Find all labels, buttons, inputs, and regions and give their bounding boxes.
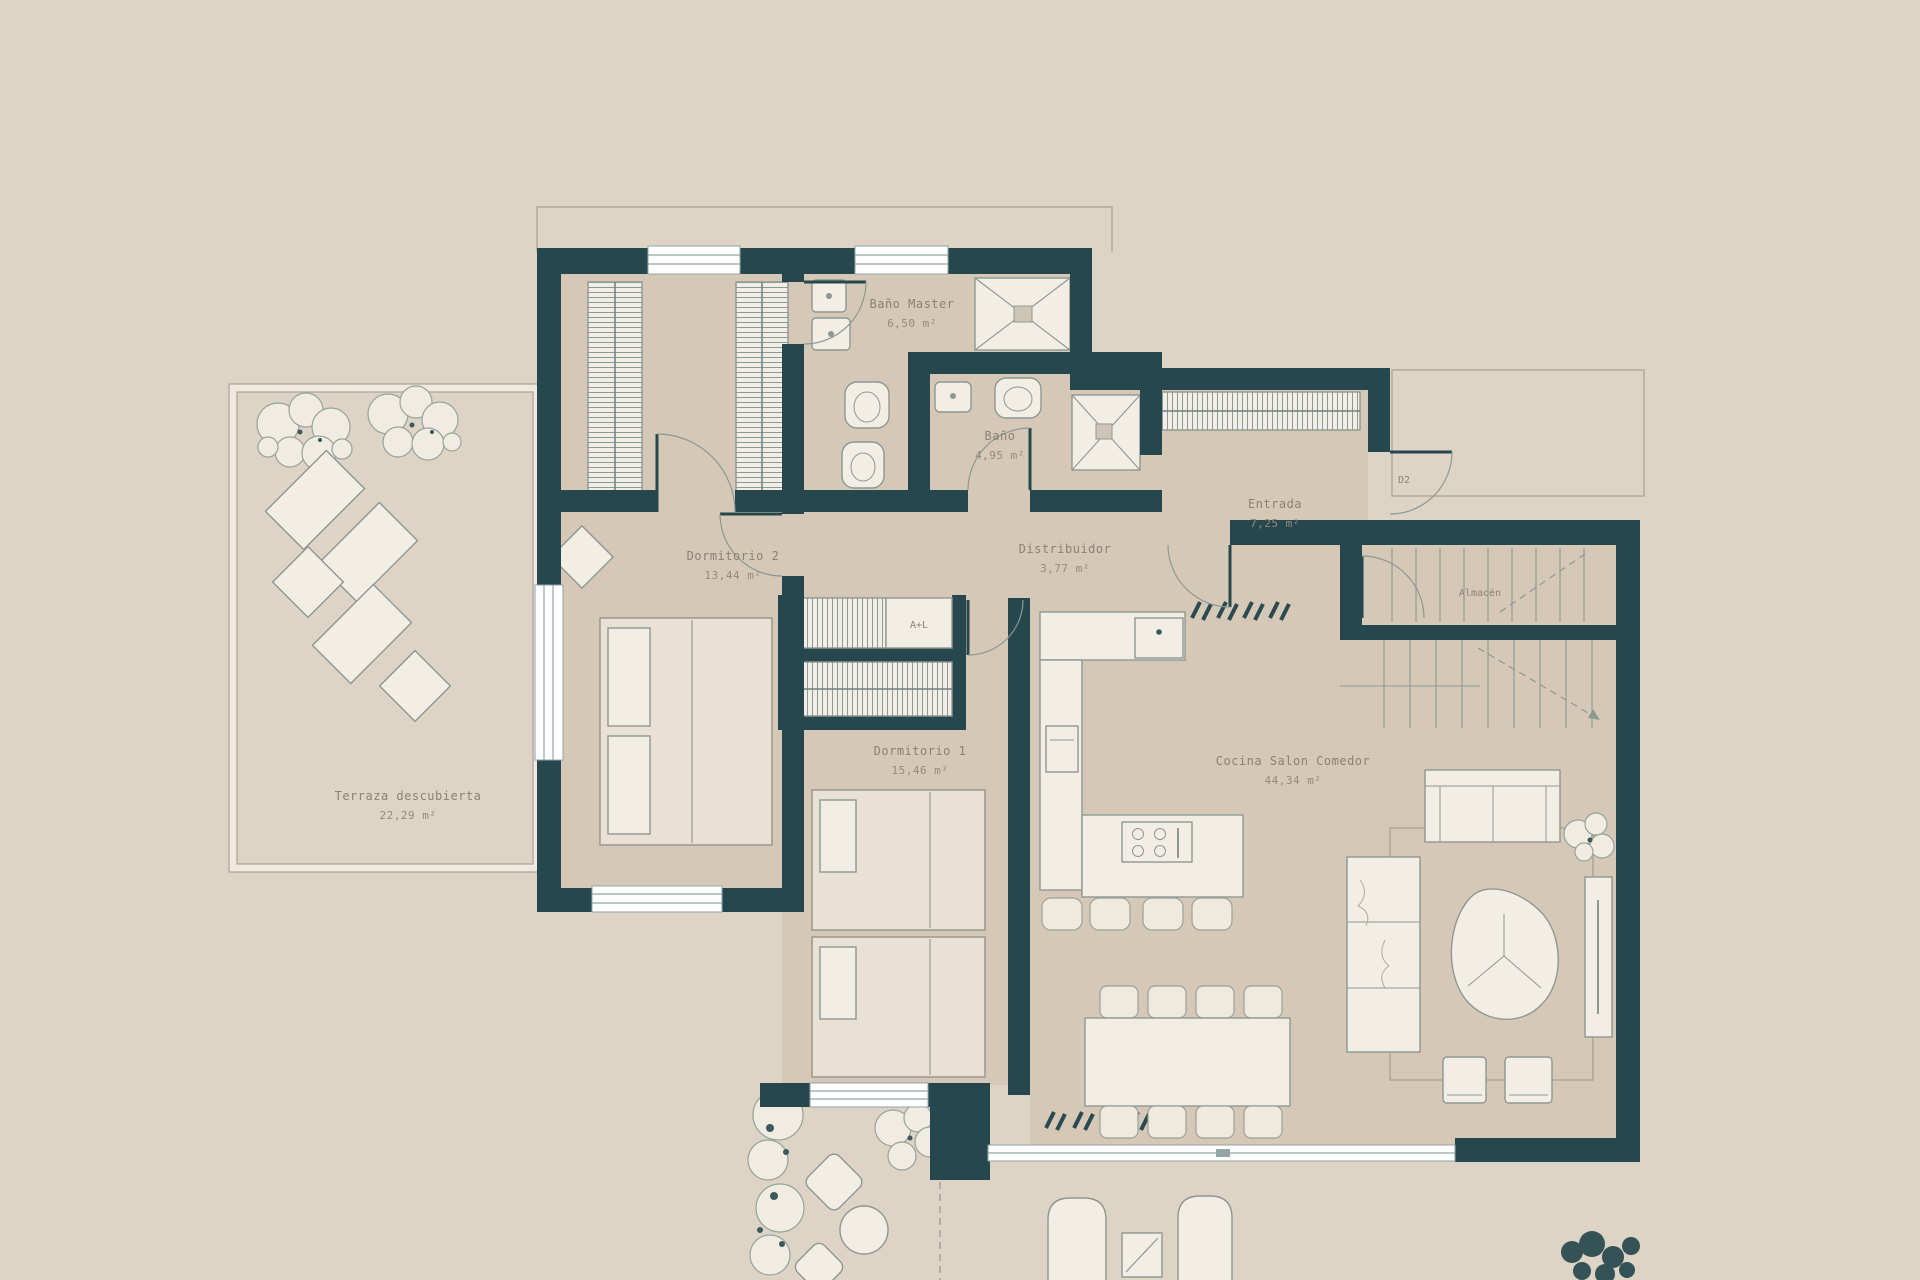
entry-door-tag: D2 [1398, 475, 1410, 486]
window [592, 886, 722, 912]
shower-icon [975, 278, 1070, 350]
window [855, 246, 948, 274]
room-label-entrada: Entrada [1248, 497, 1302, 511]
sun-lounger [1048, 1196, 1232, 1280]
window [535, 585, 563, 760]
sink-icon [1046, 726, 1078, 772]
room-label-dormitorio1: Dormitorio 1 [874, 744, 967, 758]
closet-tag: A+L [910, 620, 928, 631]
room-area-dormitorio2: 13,44 m² [705, 569, 762, 582]
bush-icon [748, 1090, 804, 1275]
room-label-bano: Baño [985, 429, 1016, 443]
room-area-bano: 4,95 m² [975, 449, 1025, 462]
room-area-cocina: 44,34 m² [1265, 774, 1322, 787]
tv-console [1585, 877, 1612, 1037]
window [810, 1083, 928, 1107]
toilet-icon [995, 378, 1041, 418]
room-area-bano-master: 6,50 m² [887, 317, 937, 330]
sink-icon [935, 382, 971, 412]
sofa-icon [1425, 770, 1560, 842]
wardrobe-icon [1162, 392, 1360, 430]
sliding-door-window [988, 1145, 1455, 1161]
floor-plan-svg: Terraza descubierta 22,29 m² Dormitorio … [0, 0, 1920, 1280]
roof-overhang-outline [537, 207, 1112, 252]
bed-icon [812, 937, 985, 1077]
room-label-dormitorio2: Dormitorio 2 [687, 549, 780, 563]
plant-icon [368, 386, 461, 460]
kitchen-island [1082, 815, 1243, 897]
sofa-icon [1347, 857, 1420, 1052]
terrace-lounger [266, 451, 451, 722]
room-area-distribuidor: 3,77 m² [1040, 562, 1090, 575]
room-label-almacen: Almacén [1459, 587, 1501, 599]
room-area-dormitorio1: 15,46 m² [892, 764, 949, 777]
room-area-entrada: 7,25 m² [1250, 517, 1300, 530]
shower-icon [1072, 395, 1140, 470]
bed-icon [812, 790, 985, 930]
plant-icon [257, 393, 352, 470]
window [648, 246, 740, 274]
hedge-icon [1561, 1231, 1640, 1280]
room-area-terraza: 22,29 m² [380, 809, 437, 822]
stone-icon [792, 1151, 888, 1280]
entry-porch-outline [1392, 370, 1644, 496]
closet-block [778, 595, 966, 730]
room-label-distribuidor: Distribuidor [1019, 542, 1112, 556]
room-label-cocina: Cocina Salon Comedor [1216, 754, 1371, 768]
room-label-terraza: Terraza descubierta [335, 789, 482, 803]
room-label-bano-master: Baño Master [870, 297, 955, 311]
